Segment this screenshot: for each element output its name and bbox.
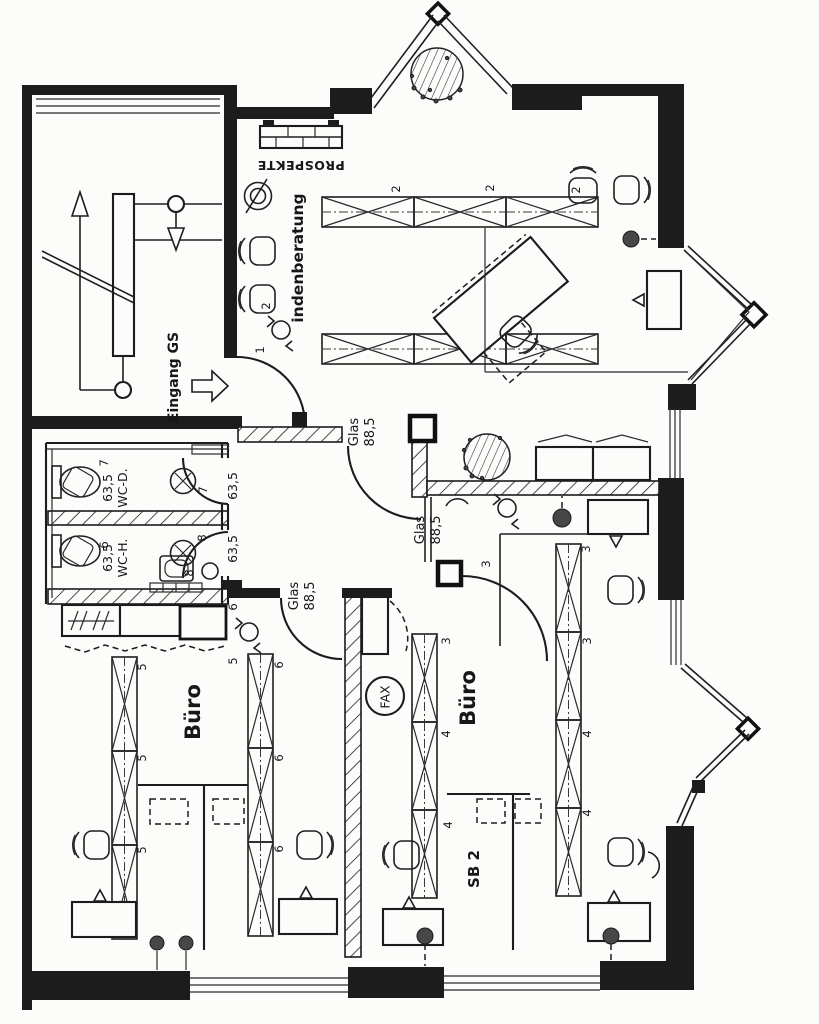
item-number: 2	[389, 185, 403, 192]
item-number: 5	[135, 754, 149, 761]
item-number: 4	[441, 821, 455, 828]
room-label-sb2: SB 2	[465, 850, 483, 888]
chair-symbol	[297, 831, 333, 859]
item-number: 7	[97, 459, 111, 466]
room-label-office: Büro	[181, 684, 205, 740]
item-number: 6	[226, 603, 240, 610]
item-number: 6	[272, 845, 286, 852]
item-number: 6	[272, 661, 286, 668]
glass-label: Glas	[347, 418, 362, 447]
room-label-wc-d: WC-D.	[115, 468, 130, 507]
shelf-unit	[248, 654, 273, 936]
shelf-unit	[412, 634, 437, 898]
chair-symbol	[608, 576, 644, 604]
marker-triangle	[300, 887, 312, 898]
glass-label: Glas	[287, 582, 302, 611]
item-number: 2	[569, 186, 583, 193]
item-number: 6	[272, 754, 286, 761]
item-number: 5	[135, 846, 149, 853]
item-number: 8	[182, 569, 196, 576]
fax-symbol: FAX	[366, 677, 404, 715]
item-number: 4	[580, 730, 594, 737]
hook-symbol	[235, 618, 261, 653]
chair-symbol	[239, 237, 275, 265]
marker-triangle	[610, 536, 622, 547]
glass-partition	[238, 427, 342, 442]
chair-symbol	[614, 176, 650, 204]
chair-symbol	[73, 831, 109, 859]
item-number: 8	[195, 534, 209, 541]
fax-label: FAX	[378, 685, 393, 709]
glass-label: Glas	[413, 516, 428, 545]
wc-block: 63,5 WC-D. 63,5 WC-H. 63,5 63,5 7 7 6 8 …	[52, 445, 261, 665]
glass-dim: 88,5	[363, 418, 378, 447]
cabinet	[536, 447, 593, 480]
radiator-dot	[603, 928, 619, 944]
dim-label: 63,5	[225, 535, 240, 563]
desk	[279, 899, 337, 934]
wc-partition	[48, 511, 228, 525]
bay-apex-pier	[737, 718, 758, 739]
item-number: 4	[439, 730, 453, 737]
door-arc	[462, 576, 547, 661]
item-number: 3	[439, 637, 453, 644]
item-number: 2	[483, 184, 497, 191]
room-label-office: Büro	[456, 670, 480, 726]
desk	[72, 902, 136, 937]
hook-symbol	[493, 494, 519, 529]
cabinet	[362, 597, 388, 654]
desk	[647, 271, 681, 329]
item-number: 5	[226, 657, 240, 664]
staircase: Eingang GS	[42, 192, 228, 422]
item-number: 3	[479, 560, 493, 567]
wc-partition	[48, 589, 228, 604]
toilet-symbol	[52, 535, 100, 568]
item-number: 6	[97, 541, 111, 548]
glass-partition	[427, 481, 659, 495]
plant-symbol	[410, 48, 463, 103]
dim-label: 63,5	[100, 474, 115, 502]
radiator-dot	[179, 936, 193, 950]
item-number: 3	[580, 637, 594, 644]
office-right: 3 3 4 4 3 4 4 Büro SB 2	[383, 500, 660, 966]
radiator-dot	[623, 231, 639, 247]
column	[410, 416, 435, 441]
radiator-dot	[553, 509, 571, 527]
glass-dim: 88,5	[303, 582, 318, 611]
washbasin-symbol	[171, 541, 196, 566]
prospekte-label: PROSPEKTE	[257, 158, 344, 173]
radiator-dot	[150, 936, 164, 950]
door-arc	[348, 446, 421, 519]
entrance-arrow	[192, 371, 228, 401]
entrance-label: Eingang GS	[166, 332, 182, 422]
toilet-symbol	[52, 466, 100, 499]
office-left: 5 5 5 6 6 6 Büro	[72, 654, 337, 970]
shelf-unit	[322, 197, 598, 227]
wc-door-arc	[183, 458, 228, 504]
plant-symbol	[462, 434, 510, 480]
radiator-dot	[417, 928, 433, 944]
glass-partition	[412, 441, 427, 497]
room-label-wc-h: WC-H.	[115, 539, 130, 578]
chair-symbol	[383, 841, 419, 869]
floor-plan-drawing: Eingang GS PROSPEKTE 2 1 indenberatung 2…	[0, 0, 819, 1024]
chair-symbol	[608, 838, 644, 866]
corridor-partition	[345, 597, 361, 957]
coat-rack	[62, 605, 226, 652]
interior-walls	[46, 416, 659, 957]
dim-label: 63,5	[225, 472, 240, 500]
glass-dim: 88,5	[429, 516, 444, 545]
column	[438, 562, 461, 585]
item-number: 4	[580, 809, 594, 816]
washbasin-symbol	[171, 469, 196, 494]
item-number: 1	[253, 346, 267, 353]
plant-symbol	[245, 179, 272, 213]
shelf-unit	[112, 657, 137, 939]
desk	[383, 909, 443, 945]
prospekte-shelf	[260, 120, 342, 148]
desk	[588, 500, 648, 534]
floor-plan-scan: Eingang GS PROSPEKTE 2 1 indenberatung 2…	[0, 0, 819, 1024]
item-number: 7	[196, 486, 210, 493]
marker-triangle	[94, 890, 106, 901]
diagonal-desk	[431, 233, 594, 393]
item-number: 2	[259, 302, 273, 309]
cabinet	[593, 447, 650, 480]
marker-triangle	[608, 891, 620, 902]
item-number: 5	[135, 663, 149, 670]
shelf-unit	[556, 544, 581, 896]
consultation-label: indenberatung	[289, 193, 307, 322]
marker-triangle	[633, 294, 644, 306]
